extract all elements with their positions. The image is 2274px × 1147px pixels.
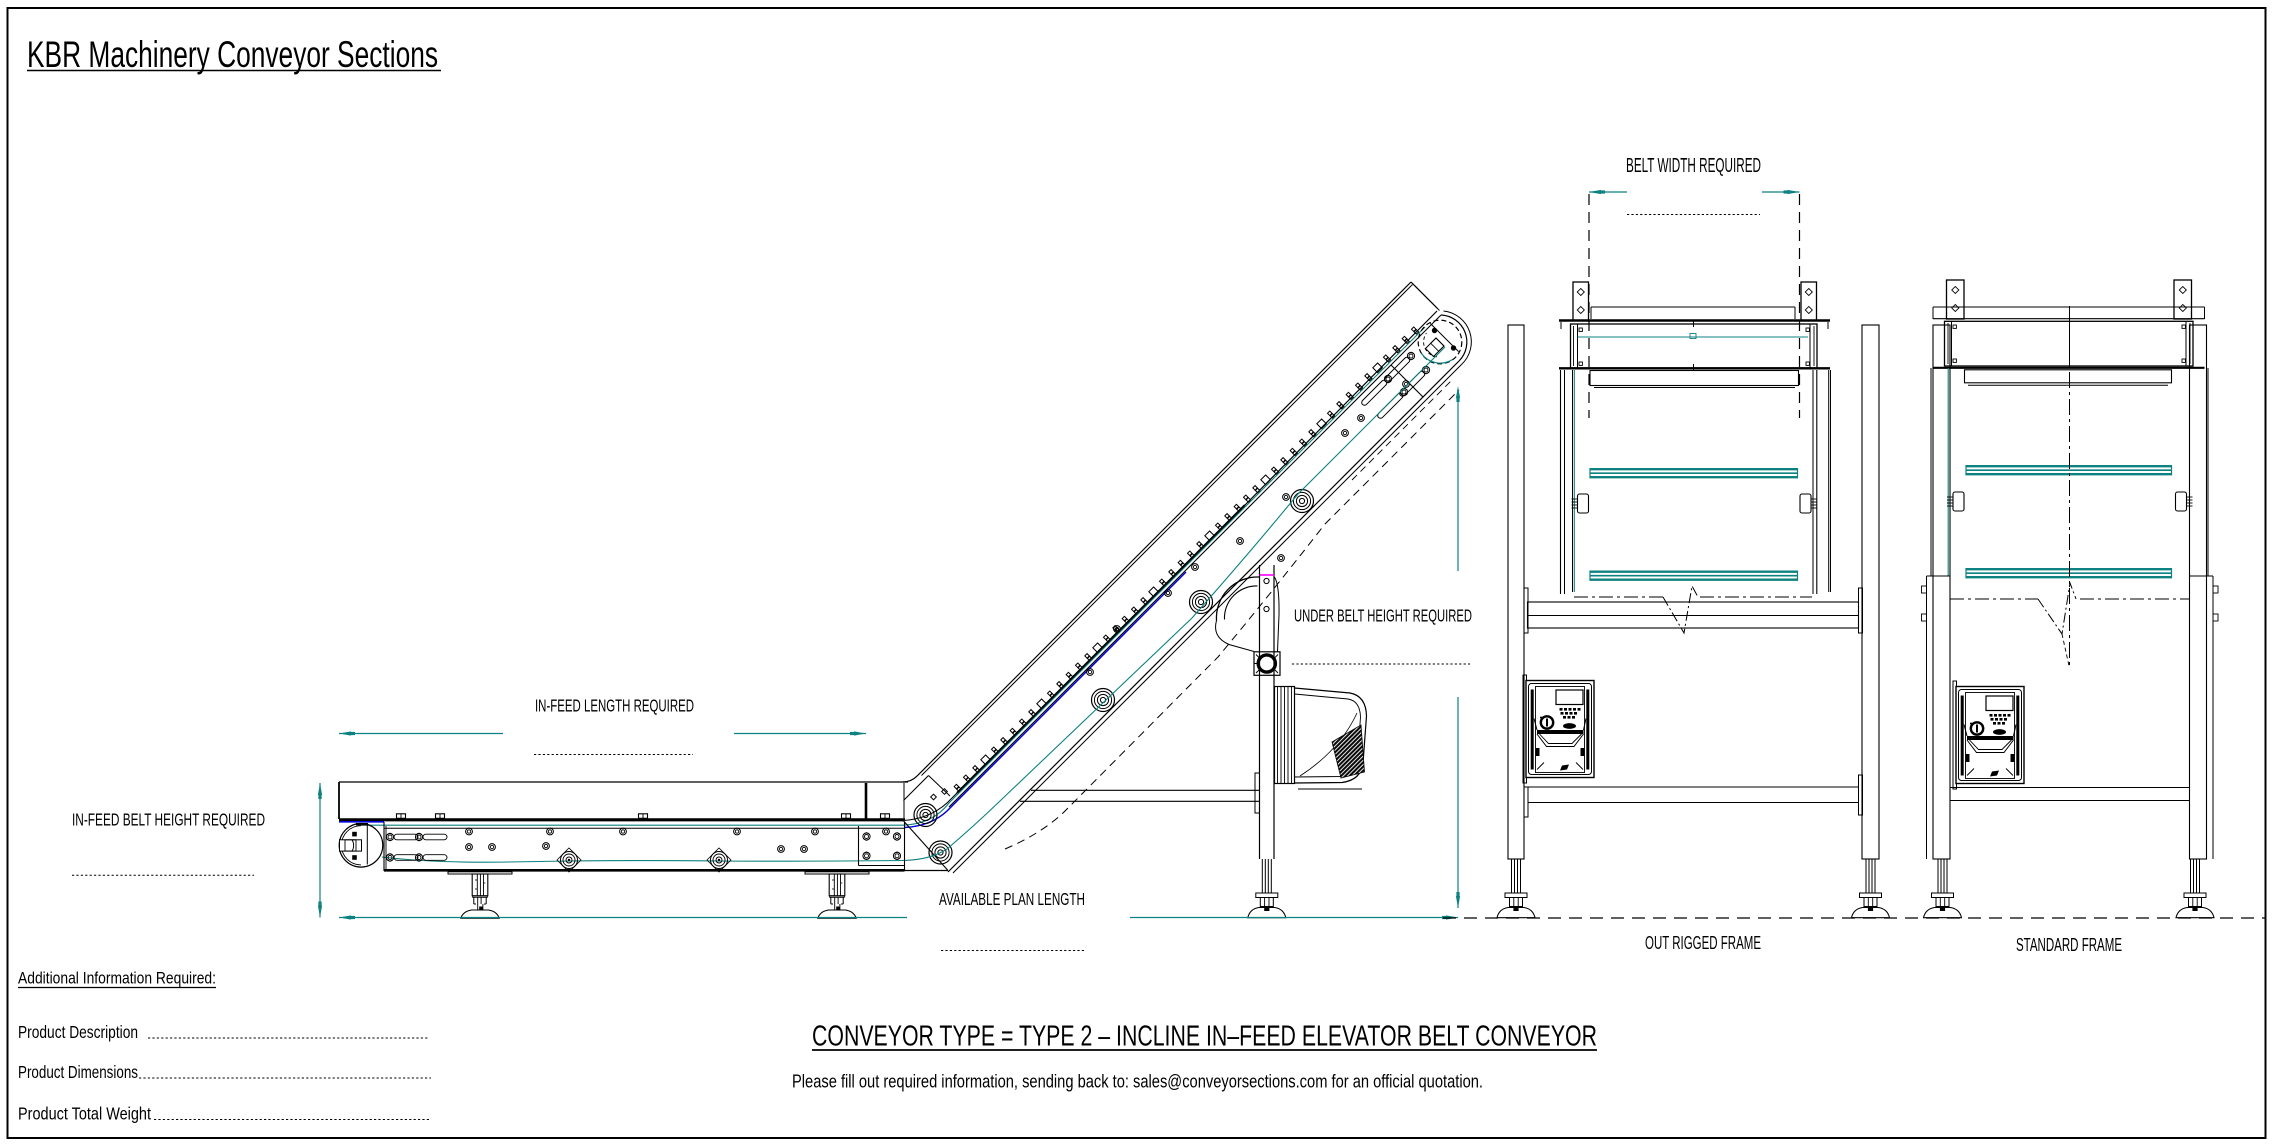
svg-text:Please fill out required infor: Please fill out required information, se… (792, 1072, 1483, 1092)
svg-text:IN-FEED BELT HEIGHT REQUIRED: IN-FEED BELT HEIGHT REQUIRED (72, 810, 265, 830)
svg-text:Additional Information Require: Additional Information Required: (18, 970, 216, 988)
svg-text:AVAILABLE PLAN LENGTH: AVAILABLE PLAN LENGTH (939, 889, 1085, 909)
svg-text:OUT RIGGED FRAME: OUT RIGGED FRAME (1645, 932, 1761, 953)
svg-text:IN-FEED LENGTH REQUIRED: IN-FEED LENGTH REQUIRED (535, 696, 694, 716)
svg-text:Product Description: Product Description (18, 1022, 138, 1042)
svg-text:STANDARD FRAME: STANDARD FRAME (2016, 934, 2122, 955)
svg-text:Product Dimensions: Product Dimensions (18, 1062, 138, 1082)
svg-text:BELT WIDTH REQUIRED: BELT WIDTH REQUIRED (1626, 155, 1761, 177)
svg-text:UNDER BELT HEIGHT REQUIRED: UNDER BELT HEIGHT REQUIRED (1294, 606, 1472, 626)
svg-text:CONVEYOR TYPE = TYPE 2 – INCLI: CONVEYOR TYPE = TYPE 2 – INCLINE IN–FEED… (812, 1021, 1597, 1053)
svg-text:KBR Machinery Conveyor Section: KBR Machinery Conveyor Sections (27, 34, 438, 75)
svg-text:Product Total Weight: Product Total Weight (18, 1104, 151, 1124)
